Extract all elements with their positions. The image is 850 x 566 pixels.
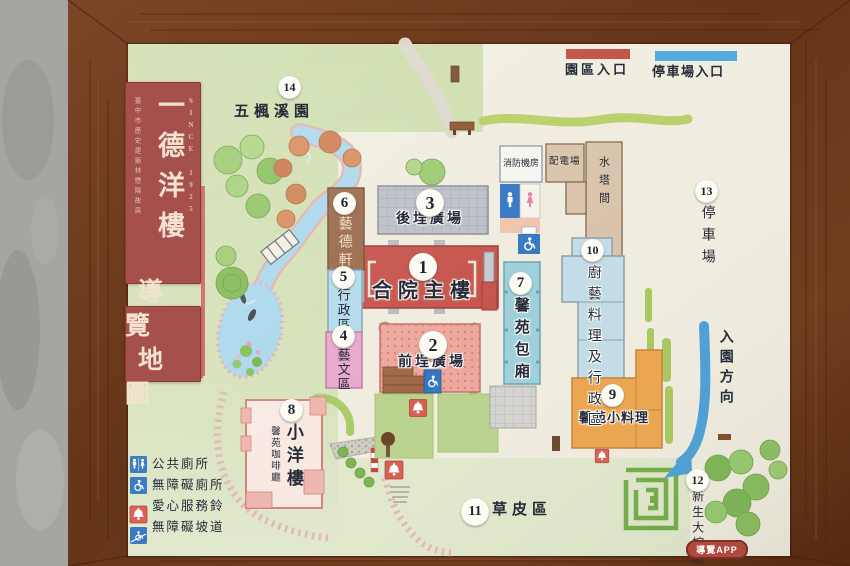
- marker-number: 5: [340, 269, 348, 286]
- map-sign-photo: 臺中市歷史建築林懋陽故居 一德洋樓 SINCE 1925 導覽 地圖 園區入口 …: [0, 0, 850, 566]
- marker-8: 8: [280, 399, 303, 422]
- marker-number: 8: [288, 402, 296, 419]
- marker-14: 14: [278, 76, 301, 99]
- label-yide-hall: 藝德軒: [336, 216, 351, 270]
- label-culinary-admin: 廚藝料理及行政區: [585, 265, 600, 433]
- marker-number: 9: [609, 387, 617, 404]
- marker-9: 9: [601, 384, 624, 407]
- legend-service-bell: 愛心服務鈴: [152, 500, 225, 513]
- marker-6: 6: [333, 192, 356, 215]
- marker-10: 10: [581, 239, 604, 262]
- marker-number: 1: [419, 257, 428, 278]
- marker-number: 11: [468, 504, 481, 520]
- marker-2: 2: [419, 331, 447, 359]
- label-small-western-building: 小洋樓: [284, 423, 302, 492]
- marker-number: 10: [587, 243, 599, 258]
- label-water-tower: 水塔間: [597, 156, 609, 210]
- site-title: 一德洋樓: [150, 91, 189, 251]
- concrete-wall: [0, 0, 70, 566]
- map-title-line2: 地圖: [125, 344, 201, 412]
- marker-1: 1: [409, 253, 437, 281]
- marker-number: 12: [692, 473, 704, 488]
- parking-entrance-label: 停車場入口: [652, 65, 725, 79]
- marker-11: 11: [461, 498, 489, 526]
- legend-accessible-restroom: 無障礙廁所: [152, 479, 225, 492]
- marker-number: 7: [517, 275, 525, 292]
- marker-number: 2: [429, 335, 438, 356]
- legend-accessible-ramp: 無障礙坡道: [152, 521, 225, 534]
- marker-5: 5: [332, 266, 355, 289]
- label-power-distribution: 配電場: [549, 158, 581, 168]
- title-banner: 臺中市歷史建築林懋陽故居 一德洋樓 SINCE 1925: [125, 82, 201, 284]
- label-main-building: 合院主樓: [352, 281, 496, 302]
- heritage-note: 臺中市歷史建築林懋陽故居: [131, 97, 141, 217]
- label-arts-area: 藝文區: [336, 348, 350, 392]
- label-parking: 停車場: [699, 205, 714, 271]
- marker-number: 3: [426, 193, 435, 214]
- marker-3: 3: [416, 189, 444, 217]
- marker-number: 4: [340, 328, 348, 345]
- label-fire-pump-room: 消防機房: [501, 159, 541, 168]
- label-banquet-rooms: 馨苑包廂: [512, 297, 528, 385]
- marker-7: 7: [509, 272, 532, 295]
- label-entry-direction: 入園方向: [717, 329, 732, 409]
- label-cafe: 馨苑咖啡廳: [268, 426, 278, 484]
- marker-12: 12: [686, 469, 709, 492]
- marker-4: 4: [332, 325, 355, 348]
- marker-number: 14: [284, 80, 296, 95]
- park-entrance-label: 園區入口: [565, 63, 629, 77]
- marker-number: 6: [341, 195, 349, 212]
- label-maple-creek: 五楓溪園: [234, 105, 314, 121]
- map-title-line1: 導覽: [125, 276, 201, 344]
- marker-number: 13: [701, 184, 713, 199]
- legend-public-restroom: 公共廁所: [152, 458, 210, 471]
- marker-13: 13: [695, 180, 718, 203]
- map-title-box: 導覽 地圖: [125, 306, 201, 382]
- since-label: SINCE 1925: [187, 97, 195, 217]
- guide-app-badge: 導覽APP: [686, 540, 748, 559]
- label-lawn-area: 草皮區: [492, 503, 552, 519]
- label-xinyuan-cuisine: 馨苑小料理: [566, 411, 662, 425]
